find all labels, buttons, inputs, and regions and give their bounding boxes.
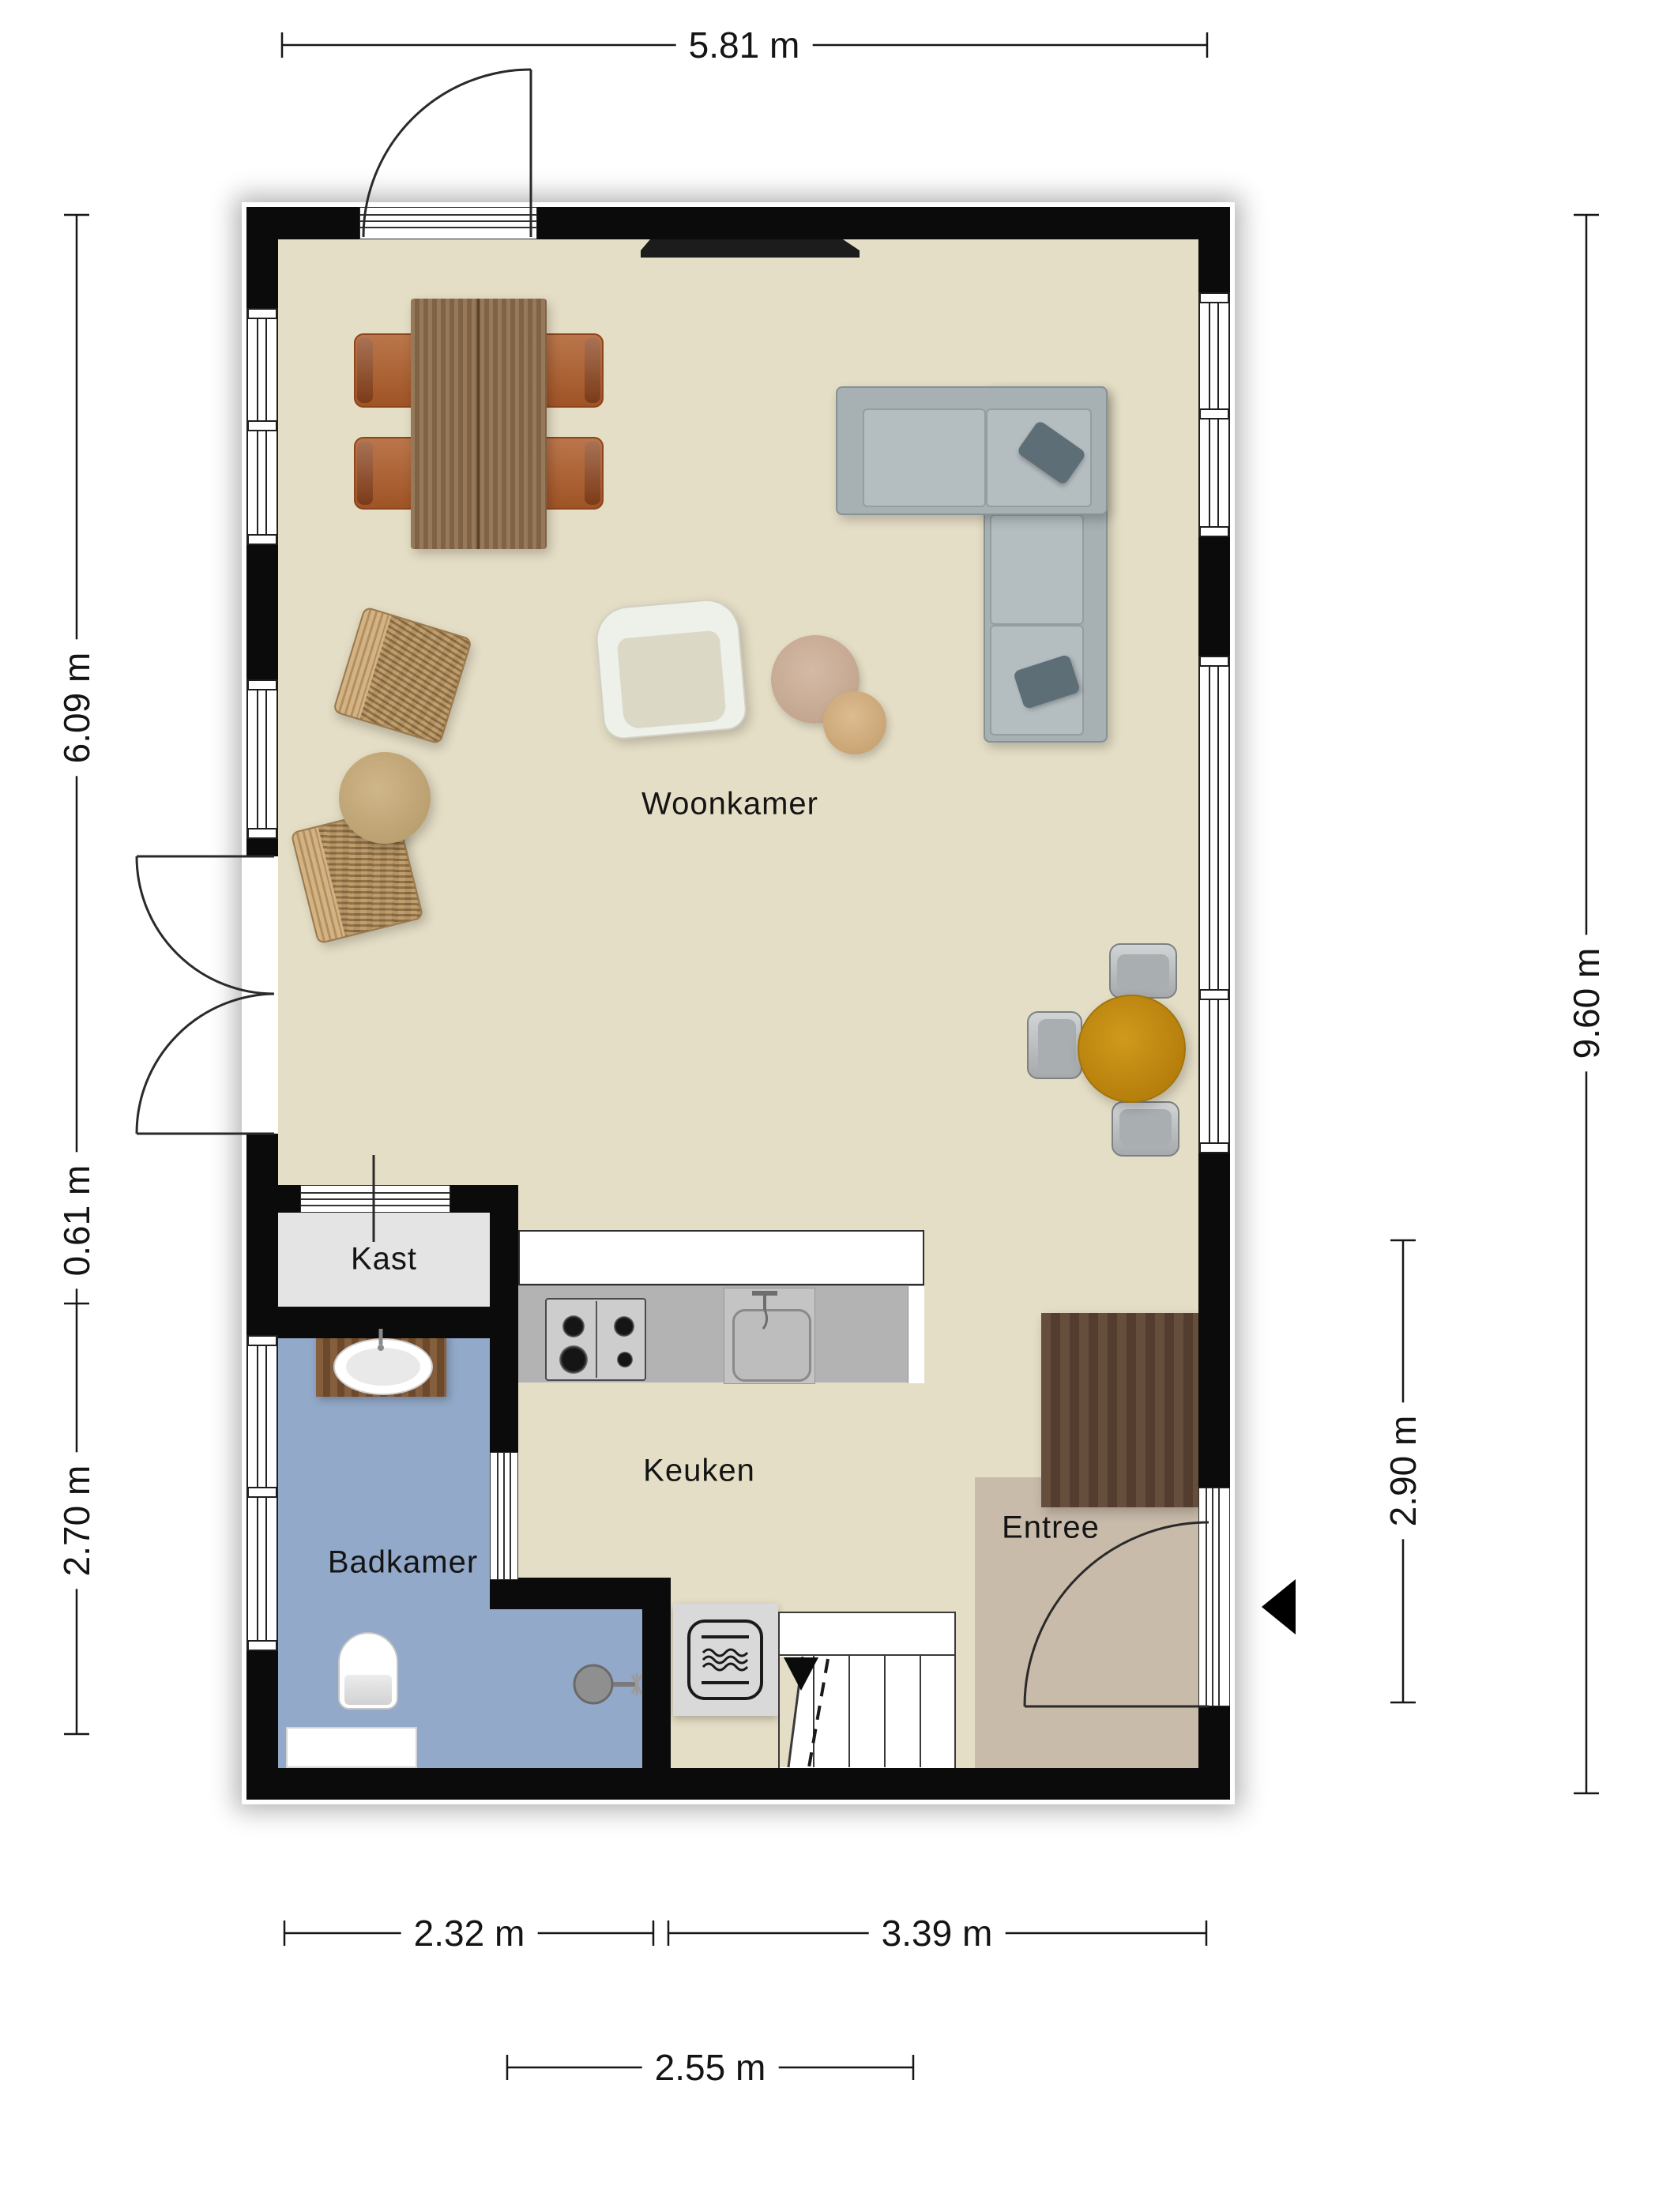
dining-table (411, 299, 547, 549)
sink-basin (732, 1309, 811, 1382)
dimension-label-left-upper: 6.09 m (54, 640, 100, 777)
staircase (778, 1612, 956, 1768)
wall-right (1198, 537, 1230, 656)
dimension-label-bottom-left: 2.32 m (401, 1910, 538, 1956)
window (1198, 292, 1230, 537)
dimension-label-left-lower: 2.70 m (54, 1453, 100, 1589)
wall-right (1198, 1153, 1230, 1488)
room-label-woonkamer: Woonkamer (641, 787, 818, 822)
pouf (339, 752, 431, 844)
room-label-badkamer: Badkamer (328, 1545, 478, 1581)
dimension-label-left-middle: 0.61 m (54, 1153, 100, 1289)
wall-right (1198, 207, 1230, 292)
door-sill-kast (300, 1185, 450, 1213)
dimension-label-right-inner: 2.90 m (1380, 1403, 1426, 1540)
wall-kast-bottom (278, 1307, 518, 1338)
cafe-chair (1112, 1101, 1179, 1157)
wall-right (1198, 1706, 1230, 1800)
counter-end-panel (908, 1286, 924, 1383)
dimension-label-right-total: 9.60 m (1563, 935, 1609, 1072)
room-label-entree: Entree (1002, 1510, 1100, 1546)
window (1198, 656, 1230, 1153)
toilet-seat (344, 1675, 392, 1705)
wall-bottom (246, 1768, 1230, 1800)
door-sill-entree (1198, 1488, 1230, 1706)
wall-badkamer-right (642, 1609, 671, 1768)
door-sill-top (359, 207, 537, 239)
burner-icon (617, 1352, 633, 1367)
wall-badkamer-jog (490, 1578, 671, 1609)
dimension-label-top: 5.81 m (676, 22, 813, 68)
wall-left (246, 207, 278, 308)
window (246, 679, 278, 839)
wall-left (246, 1134, 278, 1335)
kitchen-backsplash (518, 1230, 924, 1285)
dimension-label-bottom-counter: 2.55 m (642, 2045, 779, 2090)
french-door-opening (246, 856, 278, 1134)
stove (545, 1298, 646, 1381)
desk (1041, 1313, 1198, 1507)
wall-top (537, 207, 1230, 239)
burner-icon (562, 1315, 585, 1337)
side-table-small (823, 691, 886, 754)
floor-badkamer-ext (490, 1609, 642, 1768)
burner-icon (559, 1345, 588, 1374)
burner-icon (614, 1316, 634, 1337)
window (246, 308, 278, 545)
wall-left (246, 839, 278, 856)
door-sill-badkamer (490, 1452, 518, 1580)
armchair (593, 596, 748, 740)
wall-left (246, 545, 278, 679)
stove-divider (596, 1301, 597, 1378)
window (246, 1335, 278, 1651)
cafe-chair (1027, 1011, 1082, 1079)
armchair-seat (616, 630, 727, 730)
room-label-kast: Kast (351, 1242, 417, 1277)
round-table (1078, 995, 1186, 1103)
entry-arrow-icon (1262, 1579, 1296, 1635)
floor-plan: Woonkamer Keuken Badkamer Entree Kast 5.… (0, 0, 1659, 2212)
dimension-label-bottom-right: 3.39 m (869, 1910, 1006, 1956)
toilet-bowl (338, 1632, 398, 1710)
microwave-base (673, 1604, 778, 1716)
vanity-basin (346, 1348, 420, 1386)
vanity-sink (333, 1338, 433, 1395)
wall-kast-top (278, 1185, 300, 1213)
wall-left (246, 1651, 278, 1800)
toilet-tank (286, 1727, 417, 1768)
cafe-chair (1109, 943, 1177, 999)
vanity (316, 1334, 446, 1397)
room-label-keuken: Keuken (643, 1454, 755, 1489)
kitchen-sink (724, 1288, 815, 1384)
